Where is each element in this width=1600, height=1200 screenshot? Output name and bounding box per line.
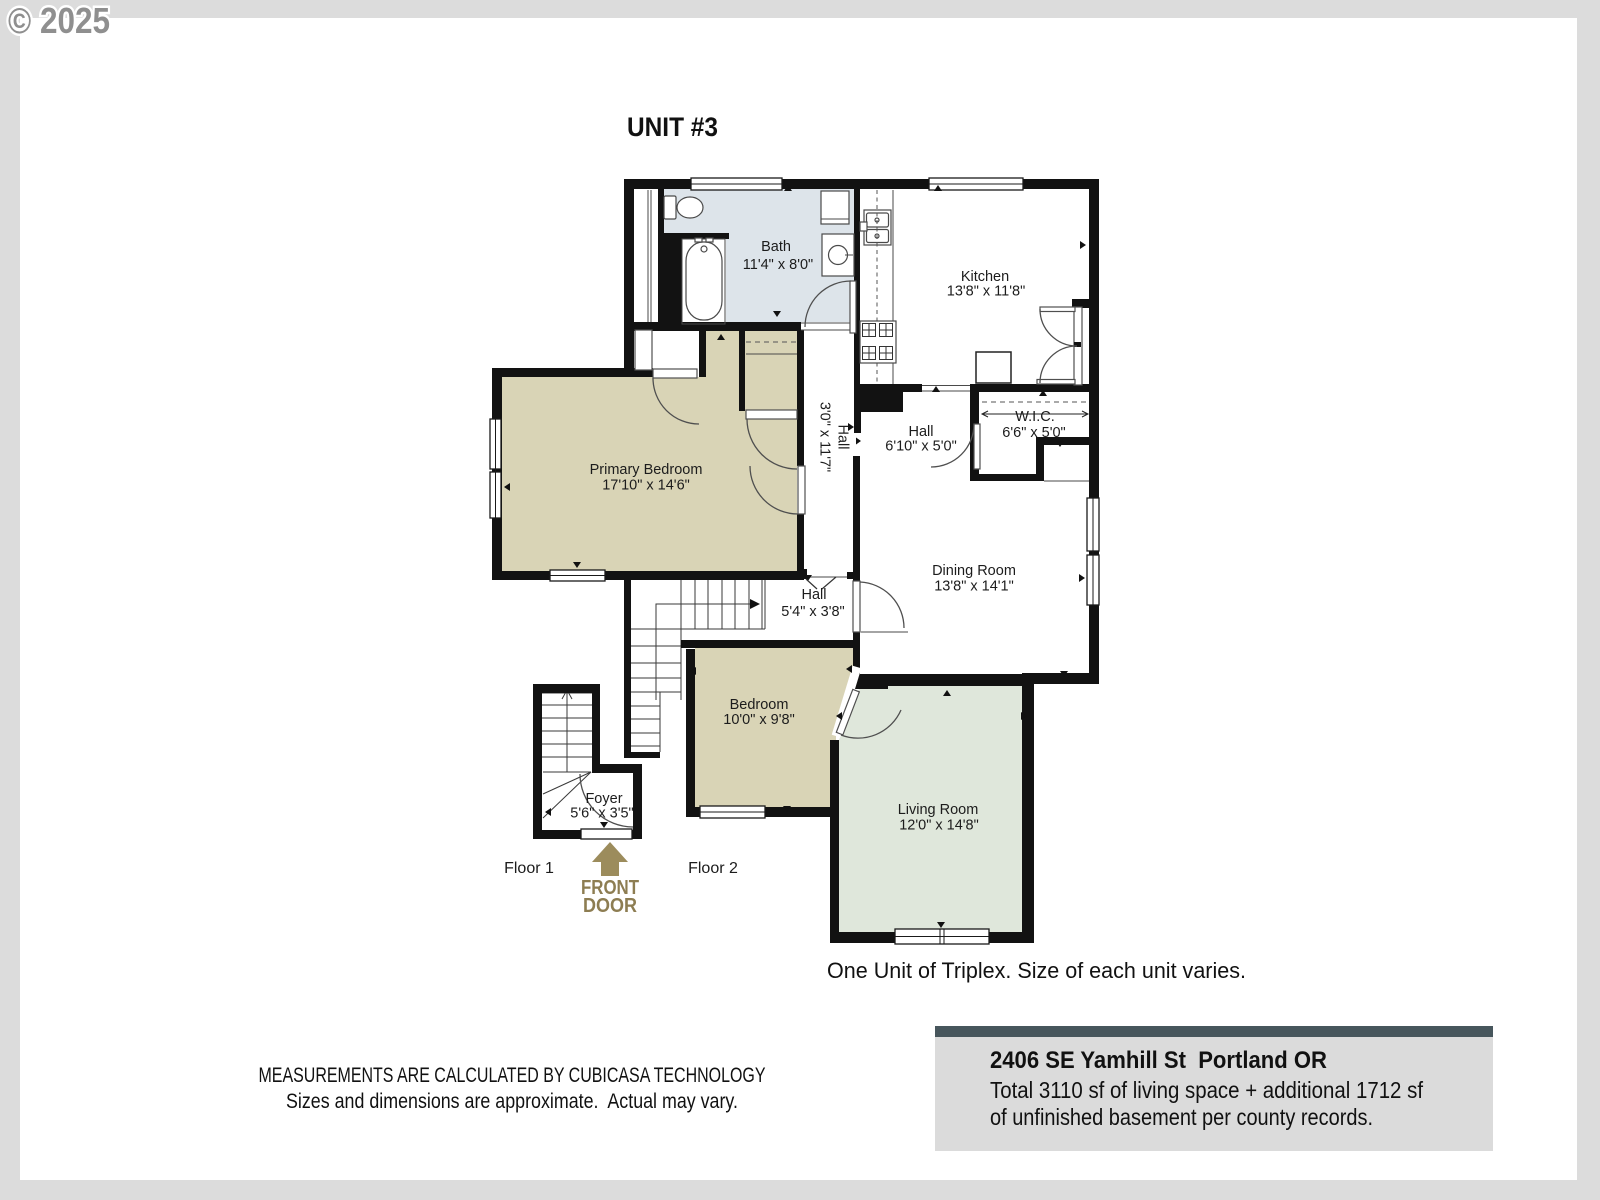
svg-text:5'6" x 3'5": 5'6" x 3'5" — [570, 806, 633, 822]
svg-text:13'8" x 14'1": 13'8" x 14'1" — [934, 579, 1014, 595]
svg-text:6'6" x 5'0": 6'6" x 5'0" — [1002, 425, 1065, 441]
svg-text:Bedroom: Bedroom — [730, 697, 789, 713]
svg-text:Hall: Hall — [802, 587, 827, 603]
svg-text:Floor 1: Floor 1 — [504, 860, 554, 877]
svg-text:Sizes and dimensions are appro: Sizes and dimensions are approximate. Ac… — [286, 1090, 738, 1113]
svg-text:of unfinished basement per cou: of unfinished basement per county record… — [990, 1104, 1373, 1130]
svg-text:© 2025: © 2025 — [8, 0, 110, 41]
svg-text:Living Room: Living Room — [898, 802, 979, 818]
svg-text:2406 SE Yamhill St Portland O: 2406 SE Yamhill St Portland OR — [990, 1047, 1327, 1074]
svg-text:Total 3110 sf of living space: Total 3110 sf of living space + addition… — [990, 1077, 1423, 1103]
svg-text:5'4" x 3'8": 5'4" x 3'8" — [781, 604, 844, 620]
svg-text:12'0" x 14'8": 12'0" x 14'8" — [899, 818, 979, 834]
svg-text:Primary Bedroom: Primary Bedroom — [590, 462, 703, 478]
svg-text:Floor 2: Floor 2 — [688, 860, 738, 877]
svg-text:Dining Room: Dining Room — [932, 563, 1016, 579]
svg-text:3'0" x 11'7": 3'0" x 11'7" — [817, 402, 833, 472]
svg-text:DOOR: DOOR — [583, 895, 638, 917]
svg-text:Bath: Bath — [761, 239, 791, 255]
svg-text:10'0" x 9'8": 10'0" x 9'8" — [723, 712, 794, 728]
svg-text:MEASUREMENTS ARE CALCULATED BY: MEASUREMENTS ARE CALCULATED BY CUBICASA … — [259, 1064, 766, 1087]
svg-text:W.I.C.: W.I.C. — [1015, 409, 1054, 425]
svg-text:17'10" x 14'6": 17'10" x 14'6" — [602, 478, 690, 494]
svg-text:13'8" x 11'8": 13'8" x 11'8" — [947, 284, 1025, 300]
svg-text:UNIT #3: UNIT #3 — [627, 112, 718, 142]
svg-text:One Unit of Triplex. Size of e: One Unit of Triplex. Size of each unit v… — [827, 958, 1246, 983]
svg-text:6'10" x 5'0": 6'10" x 5'0" — [885, 439, 956, 455]
svg-text:11'4" x 8'0": 11'4" x 8'0" — [743, 257, 813, 273]
svg-text:Hall: Hall — [835, 425, 851, 450]
